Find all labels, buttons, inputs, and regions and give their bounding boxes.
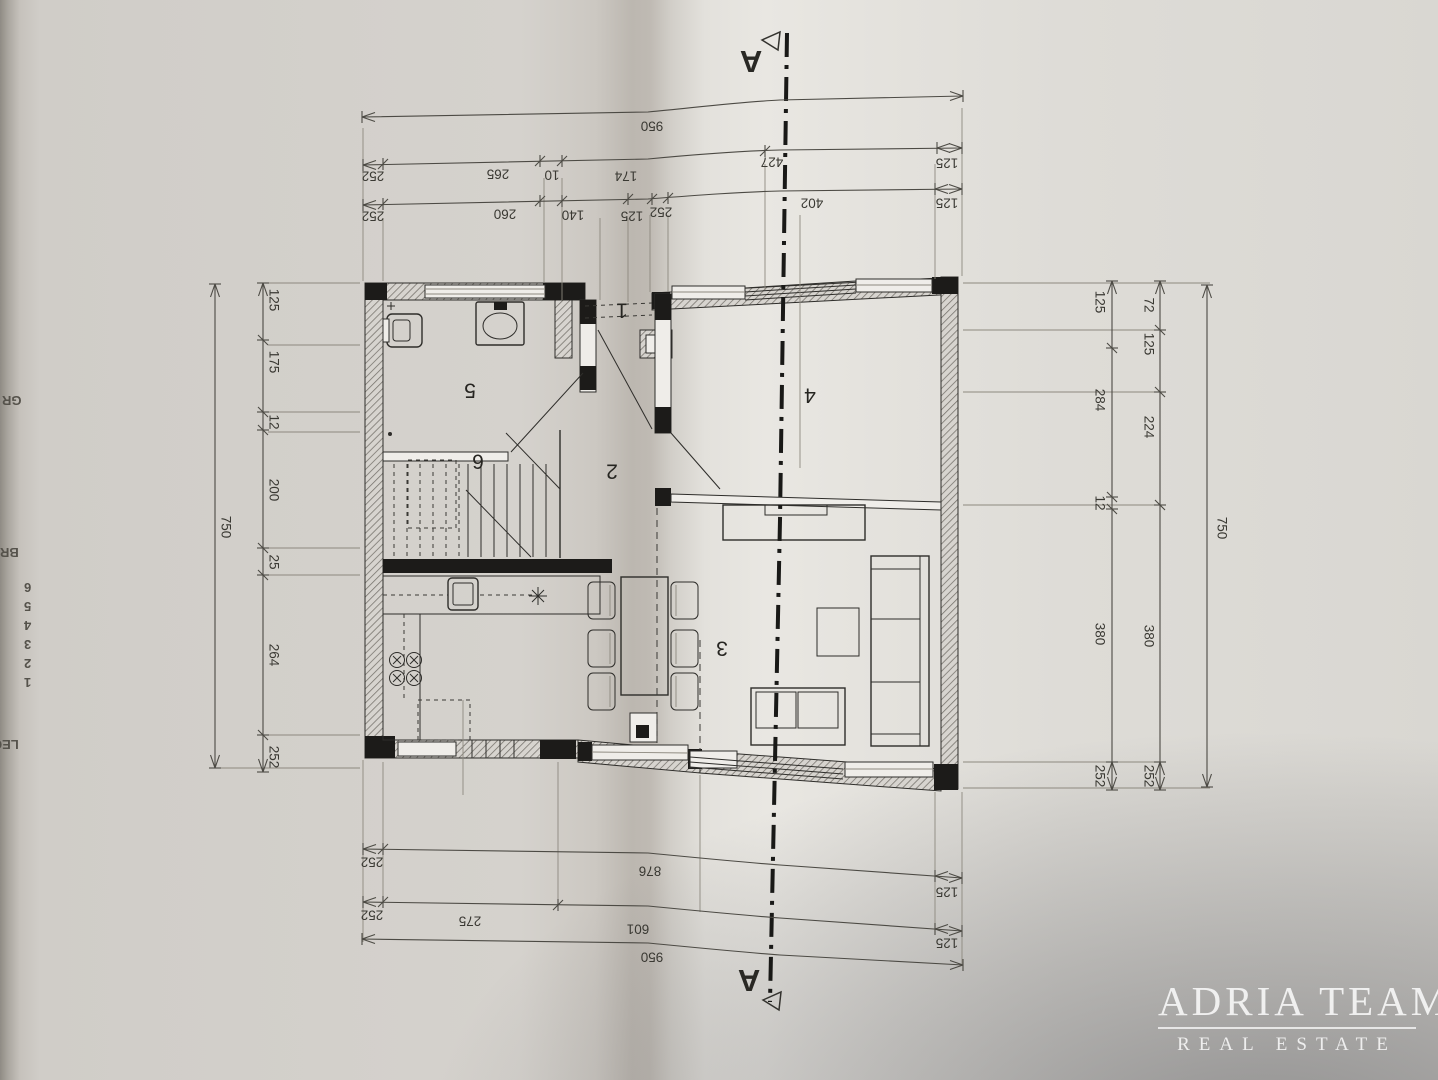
dim-left-overall: 750	[218, 516, 233, 539]
extension-lines	[210, 108, 1210, 964]
dim-label: 402	[801, 195, 824, 210]
section-label-bottom: A	[738, 963, 760, 998]
dim-label: 876	[639, 863, 662, 878]
dim-label: 252	[362, 168, 385, 183]
dim-label: 380	[1141, 625, 1156, 648]
dimension-lines	[209, 90, 1213, 971]
legend-fragment: 2	[24, 656, 31, 671]
room-label-6: 6	[472, 450, 484, 473]
dim-label: 125	[621, 208, 644, 223]
interior-walls	[383, 294, 941, 573]
section-label-top: A	[740, 44, 762, 79]
legend-fragment: 5	[24, 599, 31, 614]
bathroom-fixtures	[383, 302, 524, 436]
legend-fragment: LEG	[0, 737, 19, 752]
dim-bottom-overall: 950	[641, 949, 664, 964]
dim-label: 140	[562, 207, 585, 222]
dim-label: 252	[362, 208, 385, 223]
dim-label: 252	[361, 907, 384, 922]
staircase	[394, 430, 560, 558]
dim-label: 264	[266, 644, 281, 667]
dim-label: 601	[627, 921, 650, 936]
dim-right-overall: 750	[1214, 517, 1229, 540]
watermark-brand: ADRIA TEAM	[1158, 977, 1416, 1029]
dim-top-overall: 950	[641, 118, 664, 133]
kitchen-fixtures	[383, 576, 600, 740]
dim-label: 252	[1092, 765, 1107, 788]
dim-label: 125	[1092, 291, 1107, 314]
legend-fragment: 3	[24, 637, 31, 652]
dim-label: 12	[266, 414, 281, 429]
legend-fragment: BR	[0, 545, 19, 560]
dining-furniture	[588, 577, 698, 710]
dim-label: 427	[761, 154, 784, 169]
dim-label: 200	[266, 479, 281, 502]
dim-label: 275	[459, 913, 482, 928]
dim-label: 10	[544, 167, 559, 182]
dim-label: 125	[936, 884, 959, 899]
watermark-tagline: REAL ESTATE	[1158, 1029, 1416, 1056]
legend-fragment: 4	[24, 618, 31, 633]
room-label-3: 3	[716, 637, 728, 660]
dim-label: 260	[494, 206, 517, 221]
room-label-1: 1	[616, 299, 628, 322]
legend-fragment: 6	[24, 580, 31, 595]
dim-label: 125	[1141, 333, 1156, 356]
floor-plan-drawing: A A	[0, 0, 1438, 1080]
dim-label: 72	[1141, 297, 1156, 312]
dim-label: 125	[936, 195, 959, 210]
dim-label: 224	[1141, 416, 1156, 439]
dim-label: 25	[266, 554, 281, 569]
dim-label: 125	[936, 155, 959, 170]
dim-label: 175	[266, 351, 281, 374]
dim-label: 265	[487, 166, 510, 181]
room-label-2: 2	[606, 460, 618, 483]
dim-label: 125	[936, 935, 959, 950]
dim-label: 174	[614, 168, 637, 183]
dim-label: 284	[1092, 389, 1107, 412]
dim-label: 12	[1092, 495, 1107, 510]
room-label-5: 5	[464, 379, 476, 402]
room-label-4: 4	[804, 384, 816, 407]
dim-label: 380	[1092, 623, 1107, 646]
legend-fragment: GR	[2, 393, 22, 408]
dim-label: 252	[266, 746, 281, 769]
dim-label: 252	[361, 854, 384, 869]
legend-fragment: 1	[24, 675, 31, 690]
watermark: ADRIA TEAM REAL ESTATE	[1158, 977, 1416, 1056]
dim-label: 252	[1141, 765, 1156, 788]
dim-label: 252	[650, 204, 673, 219]
floor-plan-photo: A A	[0, 0, 1438, 1080]
dim-label: 125	[266, 289, 281, 312]
